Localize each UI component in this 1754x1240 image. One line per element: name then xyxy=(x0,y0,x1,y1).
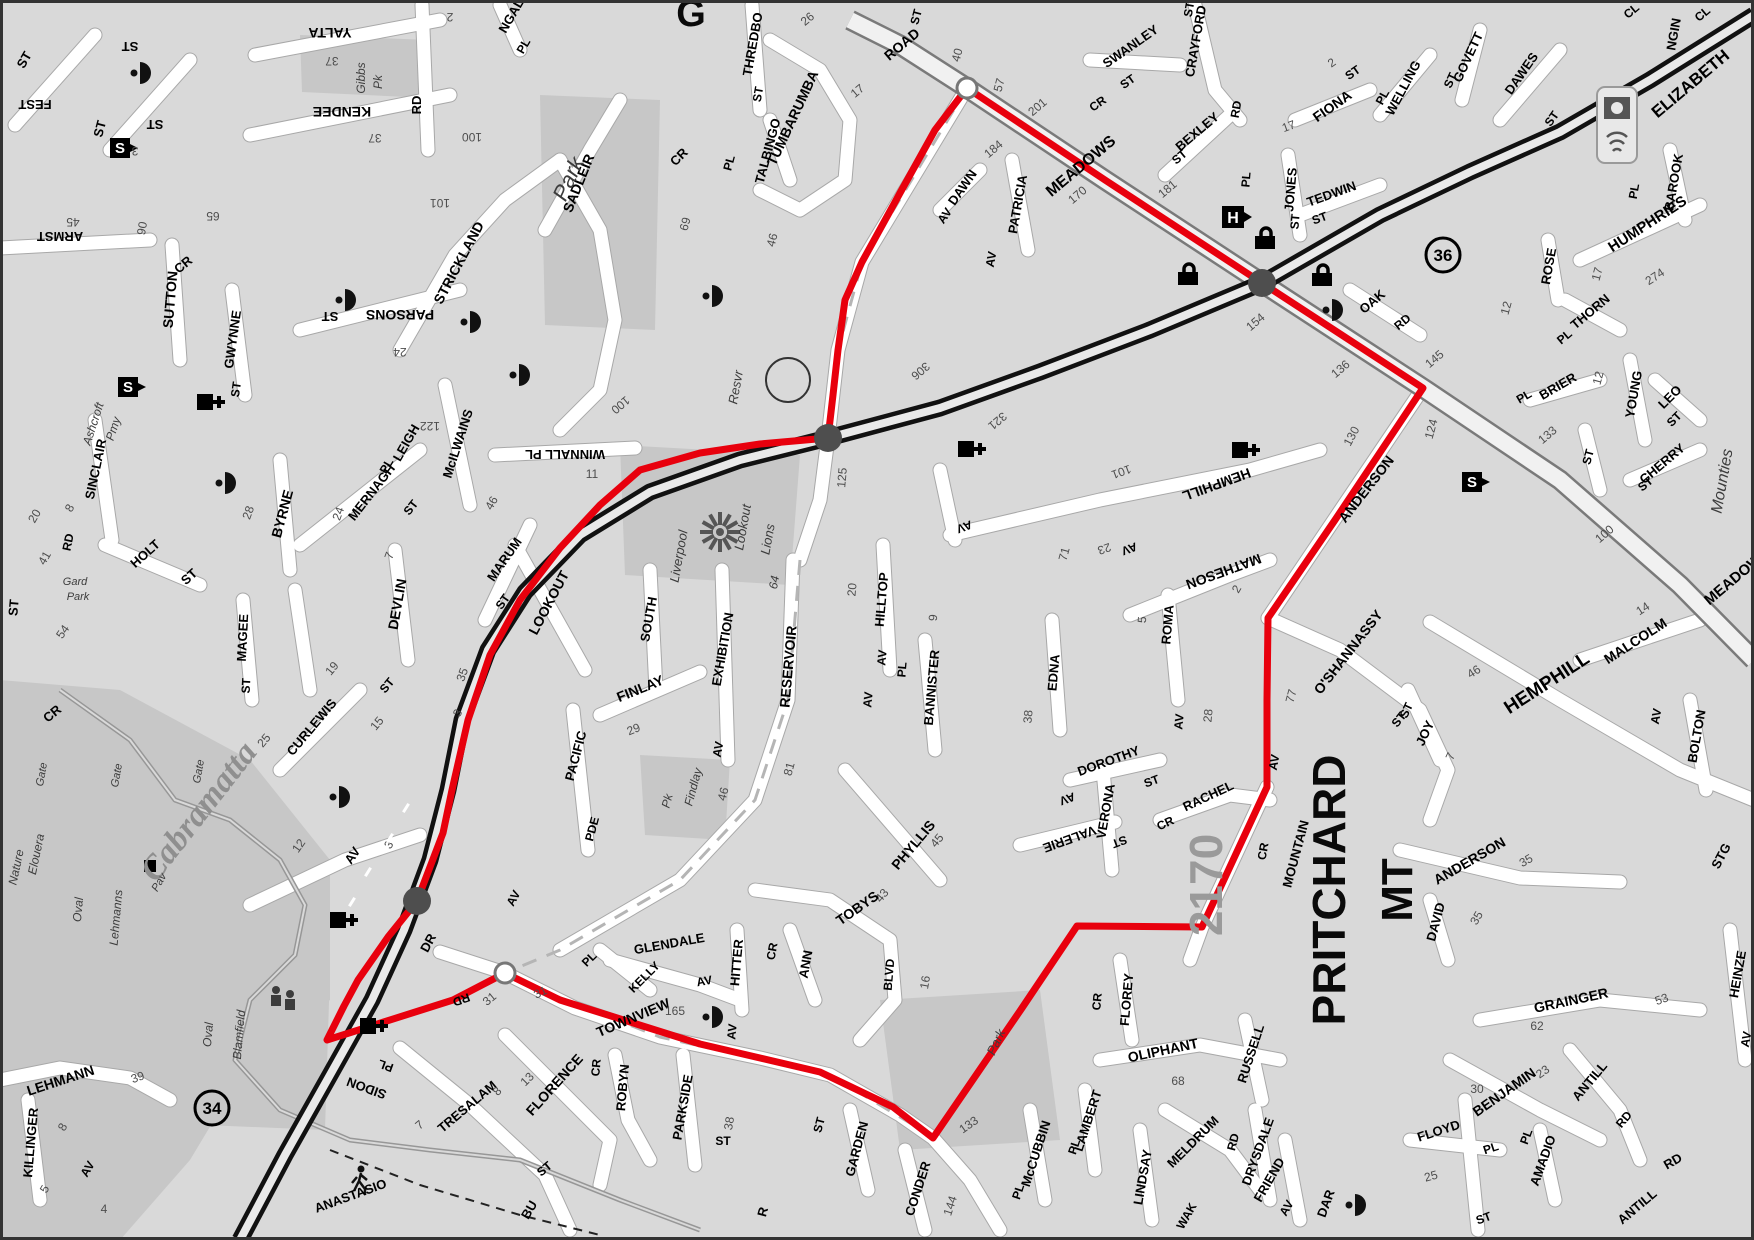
church-icon xyxy=(360,1018,388,1034)
street-label: AV xyxy=(983,250,1000,268)
place-label: MT xyxy=(1373,858,1422,922)
house-number: 2 xyxy=(446,10,453,24)
street-label: CR xyxy=(1089,992,1104,1011)
street-label: BLVD xyxy=(881,958,898,991)
street-label: ST xyxy=(5,599,21,617)
street-label: AV xyxy=(1266,753,1283,771)
street-label: MAGEE xyxy=(234,613,251,662)
place-label: Gard xyxy=(63,576,88,588)
street xyxy=(422,5,428,150)
house-number: 125 xyxy=(834,467,850,488)
house-number: 38 xyxy=(1020,709,1035,724)
street-label: ST xyxy=(322,309,339,324)
place-label: PRITCHARD xyxy=(1303,755,1355,1026)
street-label: WINNALL PL xyxy=(525,447,605,462)
svg-text:S: S xyxy=(115,140,125,157)
svg-text:S: S xyxy=(123,379,133,396)
street-map: SSSH3436STFESTYALTA37STKENDEE37RDSTST3Gi… xyxy=(0,0,1754,1240)
camera-icon xyxy=(1597,87,1637,163)
street-label: AV xyxy=(1171,713,1186,730)
svg-text:36: 36 xyxy=(1434,246,1453,265)
house-number: 101 xyxy=(430,196,450,210)
house-number: 37 xyxy=(325,54,339,68)
street-label: KENDEE xyxy=(313,104,371,120)
church-icon xyxy=(958,441,986,457)
house-number: 62 xyxy=(1530,1019,1544,1033)
house-number: 4 xyxy=(101,1202,108,1216)
place-label: 2170 xyxy=(1180,834,1232,936)
roundabout xyxy=(495,963,515,983)
house-number: 3 xyxy=(131,144,138,158)
street-label: PL xyxy=(1238,171,1253,188)
church-icon xyxy=(1232,442,1260,458)
street-label: PARSONS xyxy=(366,307,434,323)
street-label: ST xyxy=(122,39,139,54)
street-label: PL xyxy=(1626,183,1642,201)
street-label: AV xyxy=(724,1023,739,1040)
house-number: 68 xyxy=(1171,1074,1185,1088)
house-number: 38 xyxy=(721,1115,737,1131)
junction-dot xyxy=(1248,269,1276,297)
house-number: 122 xyxy=(420,419,440,433)
map-canvas: SSSH3436STFESTYALTA37STKENDEE37RDSTST3Gi… xyxy=(0,0,1754,1240)
street-label: ST xyxy=(239,677,254,694)
junction-dot xyxy=(814,424,842,452)
street-label: ST xyxy=(1287,213,1302,230)
street-label: AV xyxy=(1648,707,1665,725)
roundabout xyxy=(957,78,977,98)
junction-dot xyxy=(403,887,431,915)
svg-text:H: H xyxy=(1227,210,1239,227)
place-label: Pk xyxy=(371,74,385,89)
street-label: CR xyxy=(588,1058,603,1077)
place-label: Oval xyxy=(200,1021,216,1047)
street-label: ST xyxy=(228,380,244,398)
house-number: 65 xyxy=(206,209,220,223)
house-number: 28 xyxy=(1200,708,1215,723)
house-number: 24 xyxy=(393,345,407,359)
street-label: ARMST xyxy=(37,229,83,244)
house-number: 90 xyxy=(134,220,150,236)
house-number: 100 xyxy=(462,130,482,144)
svg-text:34: 34 xyxy=(203,1099,222,1118)
street-label: AV xyxy=(874,649,889,666)
house-number: 45 xyxy=(66,215,80,229)
church-icon xyxy=(330,912,358,928)
street-label: FEST xyxy=(18,97,51,112)
street-label: ST xyxy=(750,85,767,103)
street-label: AV xyxy=(860,691,875,708)
street-label: ST xyxy=(715,1134,731,1148)
place-label: Gibbs xyxy=(354,62,368,93)
street-label: YALTA xyxy=(308,25,351,41)
house-number: 11 xyxy=(586,467,599,481)
place-label: Oval xyxy=(70,896,86,922)
house-number: 20 xyxy=(844,582,859,597)
street-label: RD xyxy=(409,96,424,115)
street-label: AV xyxy=(695,973,713,990)
house-number: 30 xyxy=(1470,1082,1484,1096)
svg-text:S: S xyxy=(1467,474,1477,491)
street-label: ST xyxy=(147,117,164,132)
street-label: PL xyxy=(894,661,909,678)
house-number: 16 xyxy=(917,974,933,990)
street-label: AV xyxy=(710,740,727,758)
place-label: Park xyxy=(67,591,90,603)
house-number: 37 xyxy=(368,131,382,145)
church-icon xyxy=(197,394,225,410)
place-label: G xyxy=(676,0,706,35)
house-number: 165 xyxy=(665,1004,685,1018)
place-label: 64 xyxy=(766,574,782,590)
